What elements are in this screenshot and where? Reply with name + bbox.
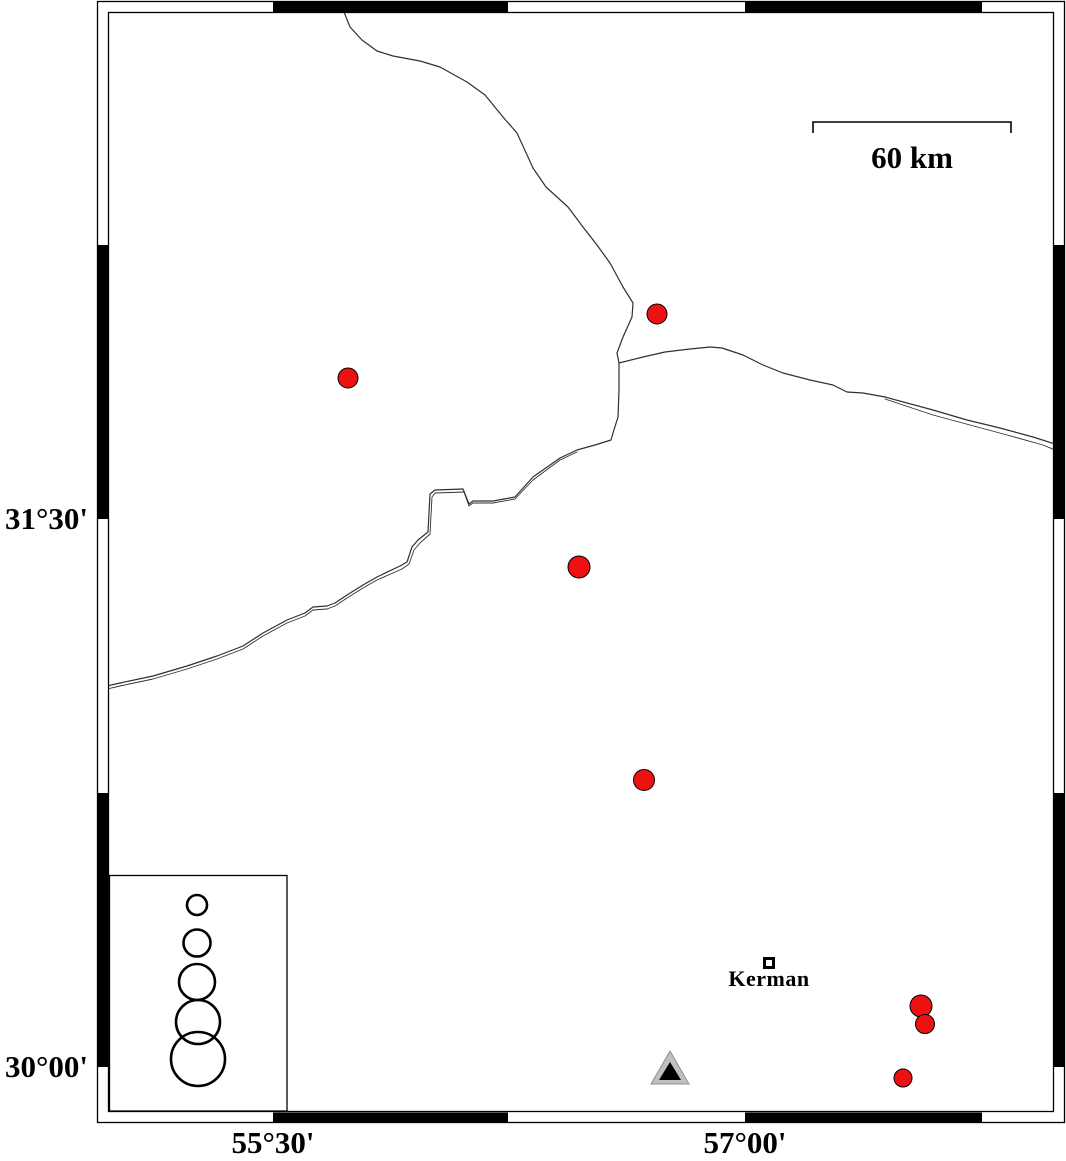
frame-segment xyxy=(98,245,109,519)
scale-bar-bracket xyxy=(813,122,1011,133)
frame-segment xyxy=(273,2,508,13)
frame-segment xyxy=(745,1113,982,1124)
fault-lines-layer xyxy=(107,12,1055,689)
lon-label-57-00: 57°00' xyxy=(645,1124,845,1161)
earthquake-epicenter-marker xyxy=(338,368,358,388)
frame-segment xyxy=(745,2,982,13)
frame-segment xyxy=(98,793,109,1067)
fault-line-east-parallel xyxy=(885,399,1055,450)
lat-label-30-00: 30°00' xyxy=(0,1048,88,1086)
legend-box xyxy=(110,876,288,1112)
frame-segment xyxy=(1054,245,1065,519)
earthquake-epicenter-marker xyxy=(634,770,655,791)
earthquake-epicenter-marker xyxy=(894,1069,912,1087)
scale-bar-label: 60 km xyxy=(812,139,1012,177)
seismicity-map: 31°30' 30°00' 55°30' 57°00' 60 km Kerman xyxy=(0,0,1066,1161)
fault-line-north xyxy=(344,12,633,363)
city-label-kerman: Kerman xyxy=(689,967,849,991)
earthquake-epicenter-marker xyxy=(916,1015,935,1034)
fault-line-southwest-parallel xyxy=(107,452,577,689)
earthquake-epicenter-marker xyxy=(910,995,932,1017)
earthquake-epicenter-marker xyxy=(568,556,590,578)
frame-segment xyxy=(1054,793,1065,1067)
frame-segment xyxy=(273,1113,508,1124)
magnitude-legend xyxy=(110,876,288,1112)
lon-label-55-30: 55°30' xyxy=(173,1124,373,1161)
lat-label-31-30: 31°30' xyxy=(0,500,88,538)
scale-bar xyxy=(813,122,1011,133)
earthquake-epicenter-marker xyxy=(647,304,667,324)
fault-line-southwest xyxy=(107,363,619,686)
fault-line-east xyxy=(619,347,1055,444)
